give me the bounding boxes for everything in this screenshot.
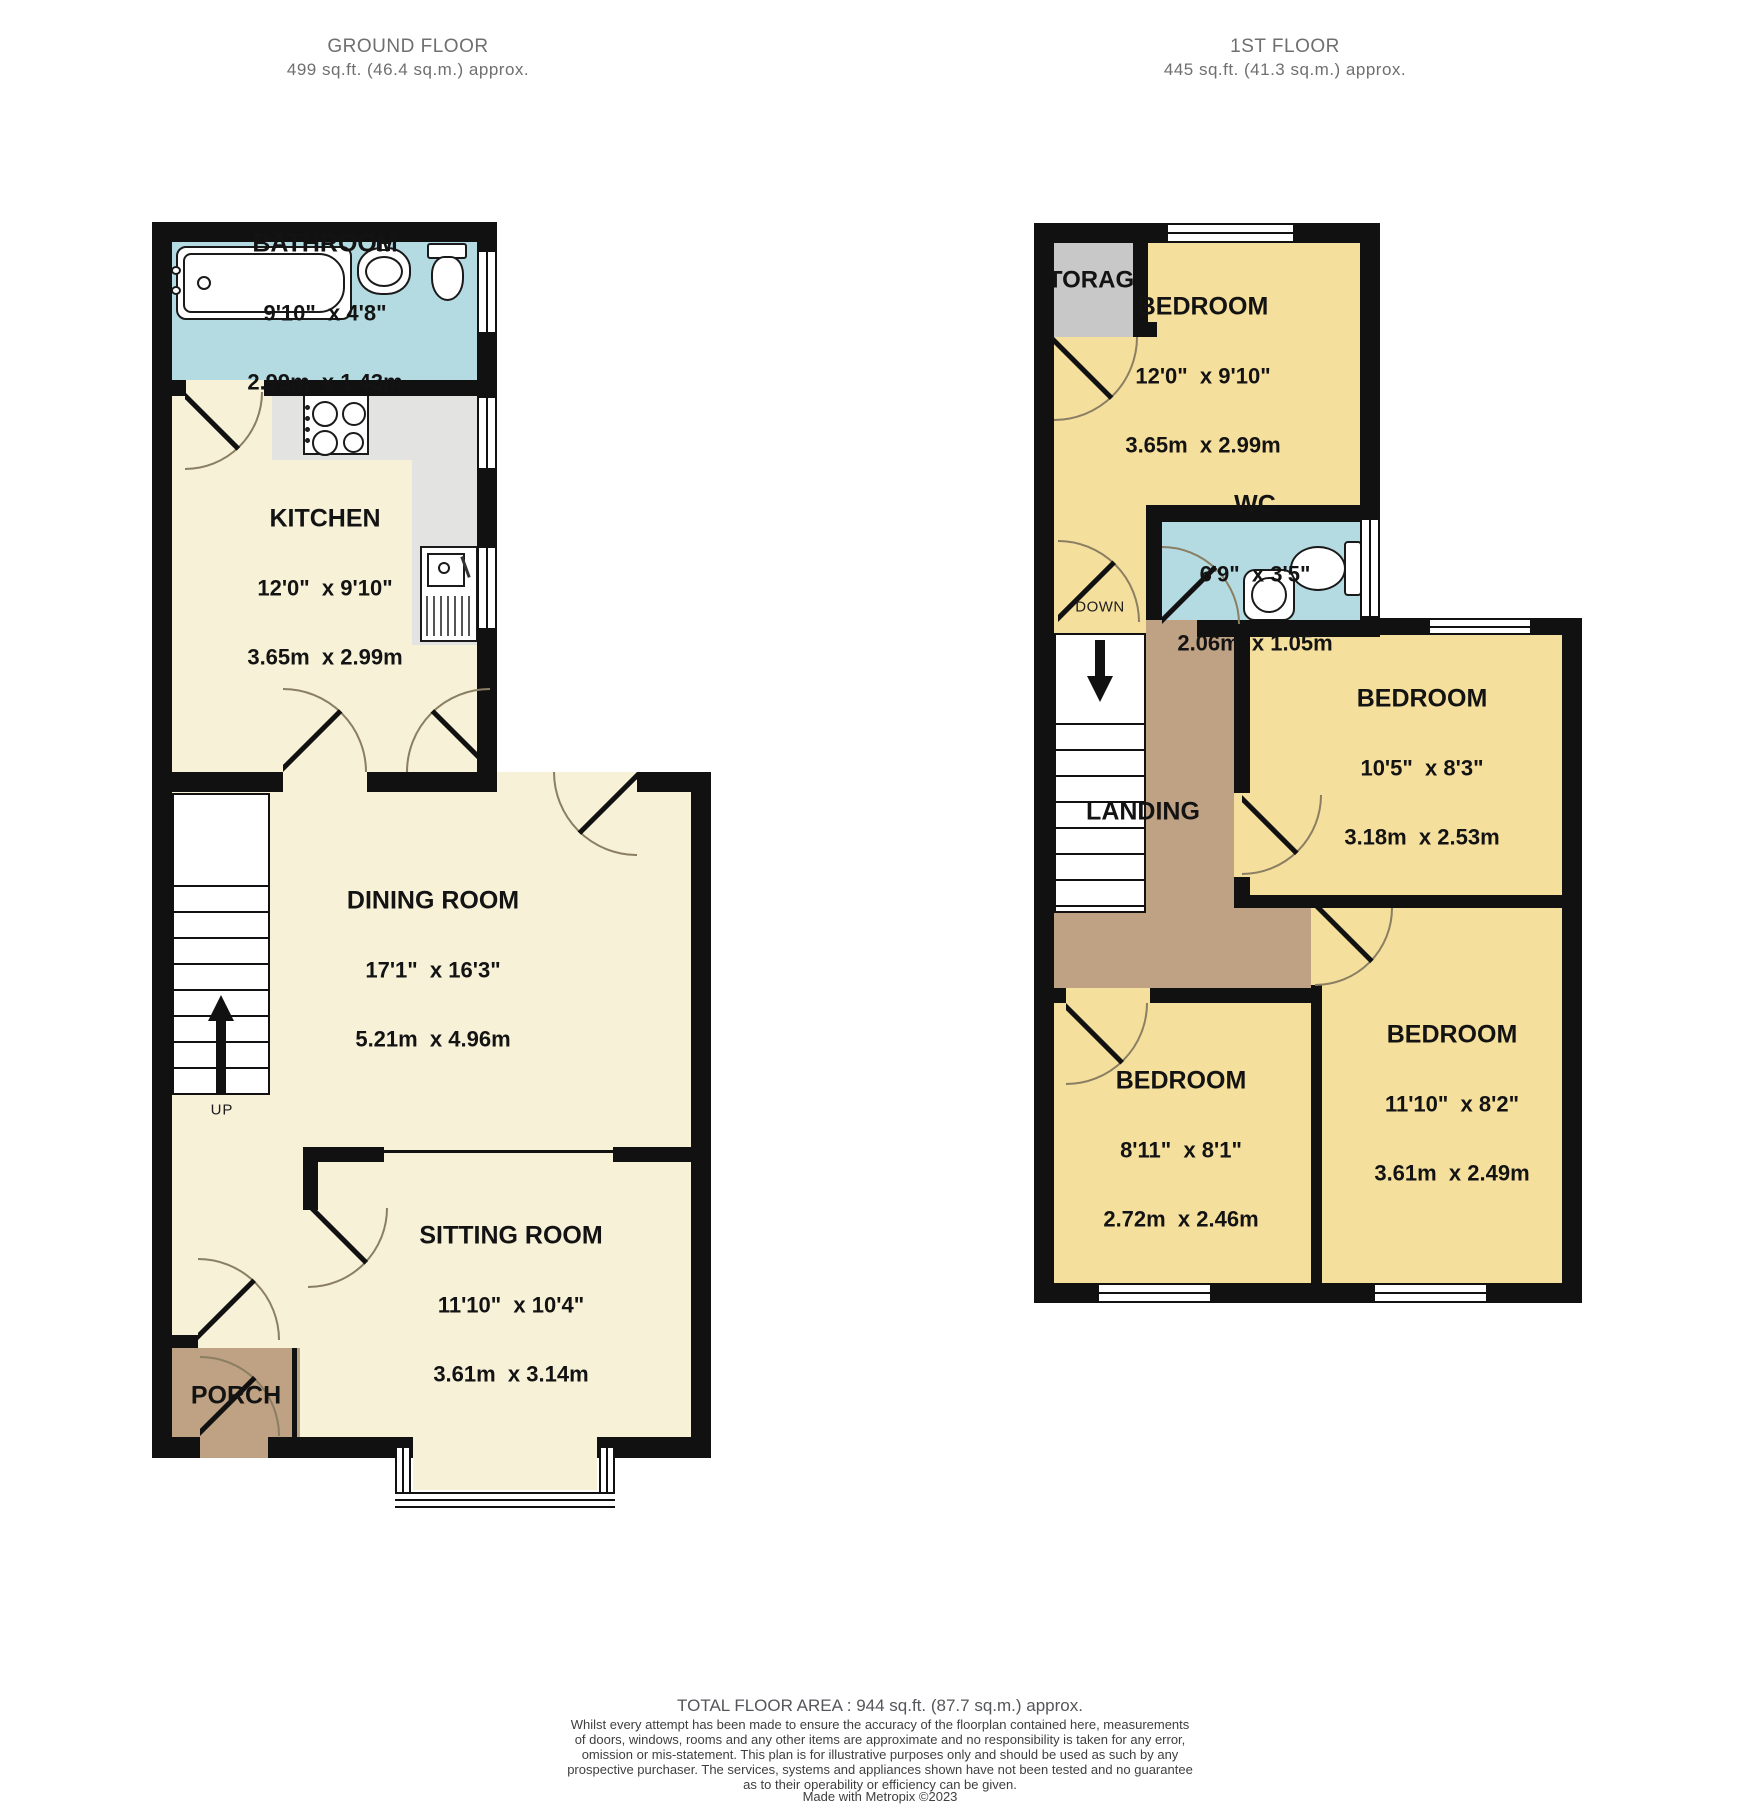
- wall: [1034, 223, 1054, 1303]
- bath-tap-icon: [171, 286, 181, 295]
- room-label-sitting-room: SITTING ROOM 11'10" x 10'4" 3.61m x 3.14…: [419, 1179, 602, 1432]
- room-label-bedroom-back-right: BEDROOM 11'10" x 8'2" 3.61m x 2.49m: [1374, 978, 1529, 1231]
- wall: [1234, 895, 1582, 908]
- room-dims-imperial: 11'10" x 10'4": [419, 1294, 602, 1317]
- room-name: KITCHEN: [247, 508, 402, 531]
- down-arrow-icon: [1087, 640, 1113, 702]
- total-floor-area: TOTAL FLOOR AREA : 944 sq.ft. (87.7 sq.m…: [677, 1696, 1083, 1716]
- first-floor-subtitle: 445 sq.ft. (41.3 sq.m.) approx.: [1164, 60, 1406, 80]
- room-name: BEDROOM: [1125, 296, 1280, 319]
- room-label-bedroom-middle: BEDROOM 10'5" x 8'3" 3.18m x 2.53m: [1344, 642, 1499, 895]
- window: [477, 548, 497, 628]
- room-dims-metric: 2.99m x 1.43m: [247, 371, 402, 394]
- room-label-kitchen: KITCHEN 12'0" x 9'10" 3.65m x 2.99m: [247, 462, 402, 715]
- disclaimer-line: prospective purchaser. The services, sys…: [567, 1763, 1193, 1778]
- room-dims-imperial: 12'0" x 9'10": [247, 577, 402, 600]
- room-name: PORCH: [191, 1385, 281, 1408]
- room-dims-metric: 3.65m x 2.99m: [247, 646, 402, 669]
- room-dims-metric: 5.21m x 4.96m: [347, 1028, 519, 1051]
- room-dims-imperial: 8'11" x 8'1": [1103, 1139, 1258, 1162]
- disclaimer-line: of doors, windows, rooms and any other i…: [575, 1733, 1186, 1748]
- porch-wall-line: [292, 1348, 297, 1437]
- room-dims-imperial: 17'1" x 16'3": [347, 959, 519, 982]
- window: [477, 252, 497, 332]
- room-dims-imperial: 11'10" x 8'2": [1374, 1093, 1529, 1116]
- wall: [172, 772, 283, 792]
- room-name: DINING ROOM: [347, 890, 519, 913]
- door-swing: [308, 1208, 388, 1288]
- bay-window: [395, 1492, 615, 1508]
- wall: [268, 1437, 413, 1458]
- room-label-landing: LANDING: [1086, 755, 1200, 870]
- drainer-line: [433, 596, 435, 636]
- wall: [1054, 988, 1066, 1003]
- landing-floor: [1234, 908, 1312, 988]
- drainer-line: [440, 596, 442, 636]
- window: [1430, 618, 1530, 635]
- room-name: BATHROOM: [247, 233, 402, 256]
- disclaimer-line: omission or mis-statement. This plan is …: [582, 1748, 1179, 1763]
- stairs-down-label: DOWN: [1075, 599, 1125, 616]
- room-name: WC: [1177, 494, 1332, 517]
- metropix-credit: Made with Metropix ©2023: [803, 1790, 958, 1805]
- drainer-line: [426, 596, 428, 636]
- bath-tap-icon: [171, 266, 181, 275]
- room-dims-imperial: 6'9" x 3'5": [1177, 563, 1332, 586]
- ground-floor-title: GROUND FLOOR: [327, 36, 488, 58]
- wall: [152, 222, 172, 1458]
- wall: [1562, 618, 1582, 1303]
- room-dims-metric: 3.18m x 2.53m: [1344, 826, 1499, 849]
- room-label-wc: WC 6'9" x 3'5" 2.06m x 1.05m: [1177, 448, 1332, 701]
- door-swing: [406, 688, 490, 772]
- room-name: SITTING ROOM: [419, 1225, 602, 1248]
- toilet-icon: [431, 256, 464, 301]
- wall: [1311, 985, 1322, 1283]
- kitchen-sink-drain: [438, 562, 450, 574]
- room-dims-metric: 2.72m x 2.46m: [1103, 1208, 1258, 1231]
- window: [1375, 1283, 1486, 1303]
- window: [477, 398, 497, 468]
- landing-floor: [1054, 913, 1146, 988]
- doorway-floor: [283, 772, 367, 792]
- window: [1360, 520, 1380, 616]
- wall: [172, 380, 186, 396]
- wall: [367, 772, 490, 792]
- first-floor-title: 1ST FLOOR: [1230, 36, 1340, 58]
- bay-window-floor: [413, 1437, 597, 1490]
- room-label-dining-room: DINING ROOM 17'1" x 16'3" 5.21m x 4.96m: [347, 844, 519, 1097]
- bathtub-drain: [197, 276, 211, 290]
- wall: [691, 772, 711, 1458]
- room-label-bedroom-back-left: BEDROOM 8'11" x 8'1" 2.72m x 2.46m: [1103, 1024, 1258, 1277]
- room-dims-imperial: 9'10" x 4'8": [247, 302, 402, 325]
- window: [1168, 223, 1293, 243]
- door-swing: [198, 1258, 280, 1340]
- stairs-up-label: UP: [211, 1102, 234, 1119]
- window: [1099, 1283, 1210, 1303]
- room-dims-imperial: 12'0" x 9'10": [1125, 365, 1280, 388]
- wall: [613, 1147, 691, 1162]
- door-swing: [553, 772, 637, 856]
- room-divider-line: [384, 1150, 613, 1153]
- up-arrow-icon: [208, 995, 234, 1095]
- drainer-line: [454, 596, 456, 636]
- drainer-line: [447, 596, 449, 636]
- room-name: BEDROOM: [1344, 688, 1499, 711]
- wall: [303, 1147, 318, 1210]
- disclaimer-line: Whilst every attempt has been made to en…: [571, 1718, 1190, 1733]
- wall: [1150, 988, 1312, 1003]
- room-dims-metric: 2.06m x 1.05m: [1177, 632, 1332, 655]
- room-label-storage: TORAG: [1048, 223, 1134, 338]
- room-dims-imperial: 10'5" x 8'3": [1344, 757, 1499, 780]
- wall: [1146, 505, 1162, 620]
- drainer-line: [468, 596, 470, 636]
- room-name: TORAG: [1048, 269, 1134, 292]
- room-name: LANDING: [1086, 801, 1200, 824]
- room-label-bathroom: BATHROOM 9'10" x 4'8" 2.99m x 1.43m: [247, 187, 402, 440]
- room-dims-metric: 3.61m x 3.14m: [419, 1363, 602, 1386]
- room-name: BEDROOM: [1103, 1070, 1258, 1093]
- door-swing: [1315, 908, 1393, 986]
- room-label-porch: PORCH: [191, 1339, 281, 1454]
- ground-floor-subtitle: 499 sq.ft. (46.4 sq.m.) approx.: [287, 60, 529, 80]
- room-name: BEDROOM: [1374, 1024, 1529, 1047]
- drainer-line: [461, 596, 463, 636]
- door-swing: [1242, 795, 1322, 875]
- doorway-floor: [1066, 988, 1150, 1003]
- room-dims-metric: 3.61m x 2.49m: [1374, 1162, 1529, 1185]
